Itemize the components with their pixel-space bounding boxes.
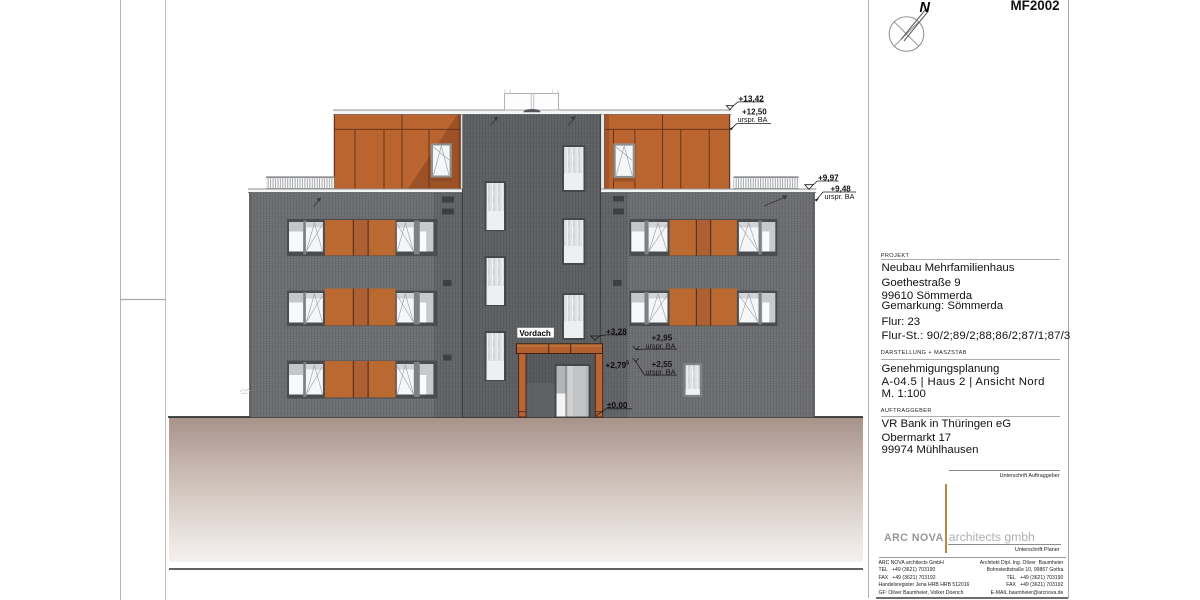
svg-text:+2,79: +2,79 (606, 361, 627, 370)
svg-text:urspr. BA: urspr. BA (825, 192, 855, 201)
svg-text:5: 5 (626, 361, 629, 367)
svg-text:urspr. BA: urspr. BA (738, 115, 768, 124)
svg-text:N: N (920, 0, 931, 16)
svg-text:Vordach: Vordach (519, 329, 551, 338)
